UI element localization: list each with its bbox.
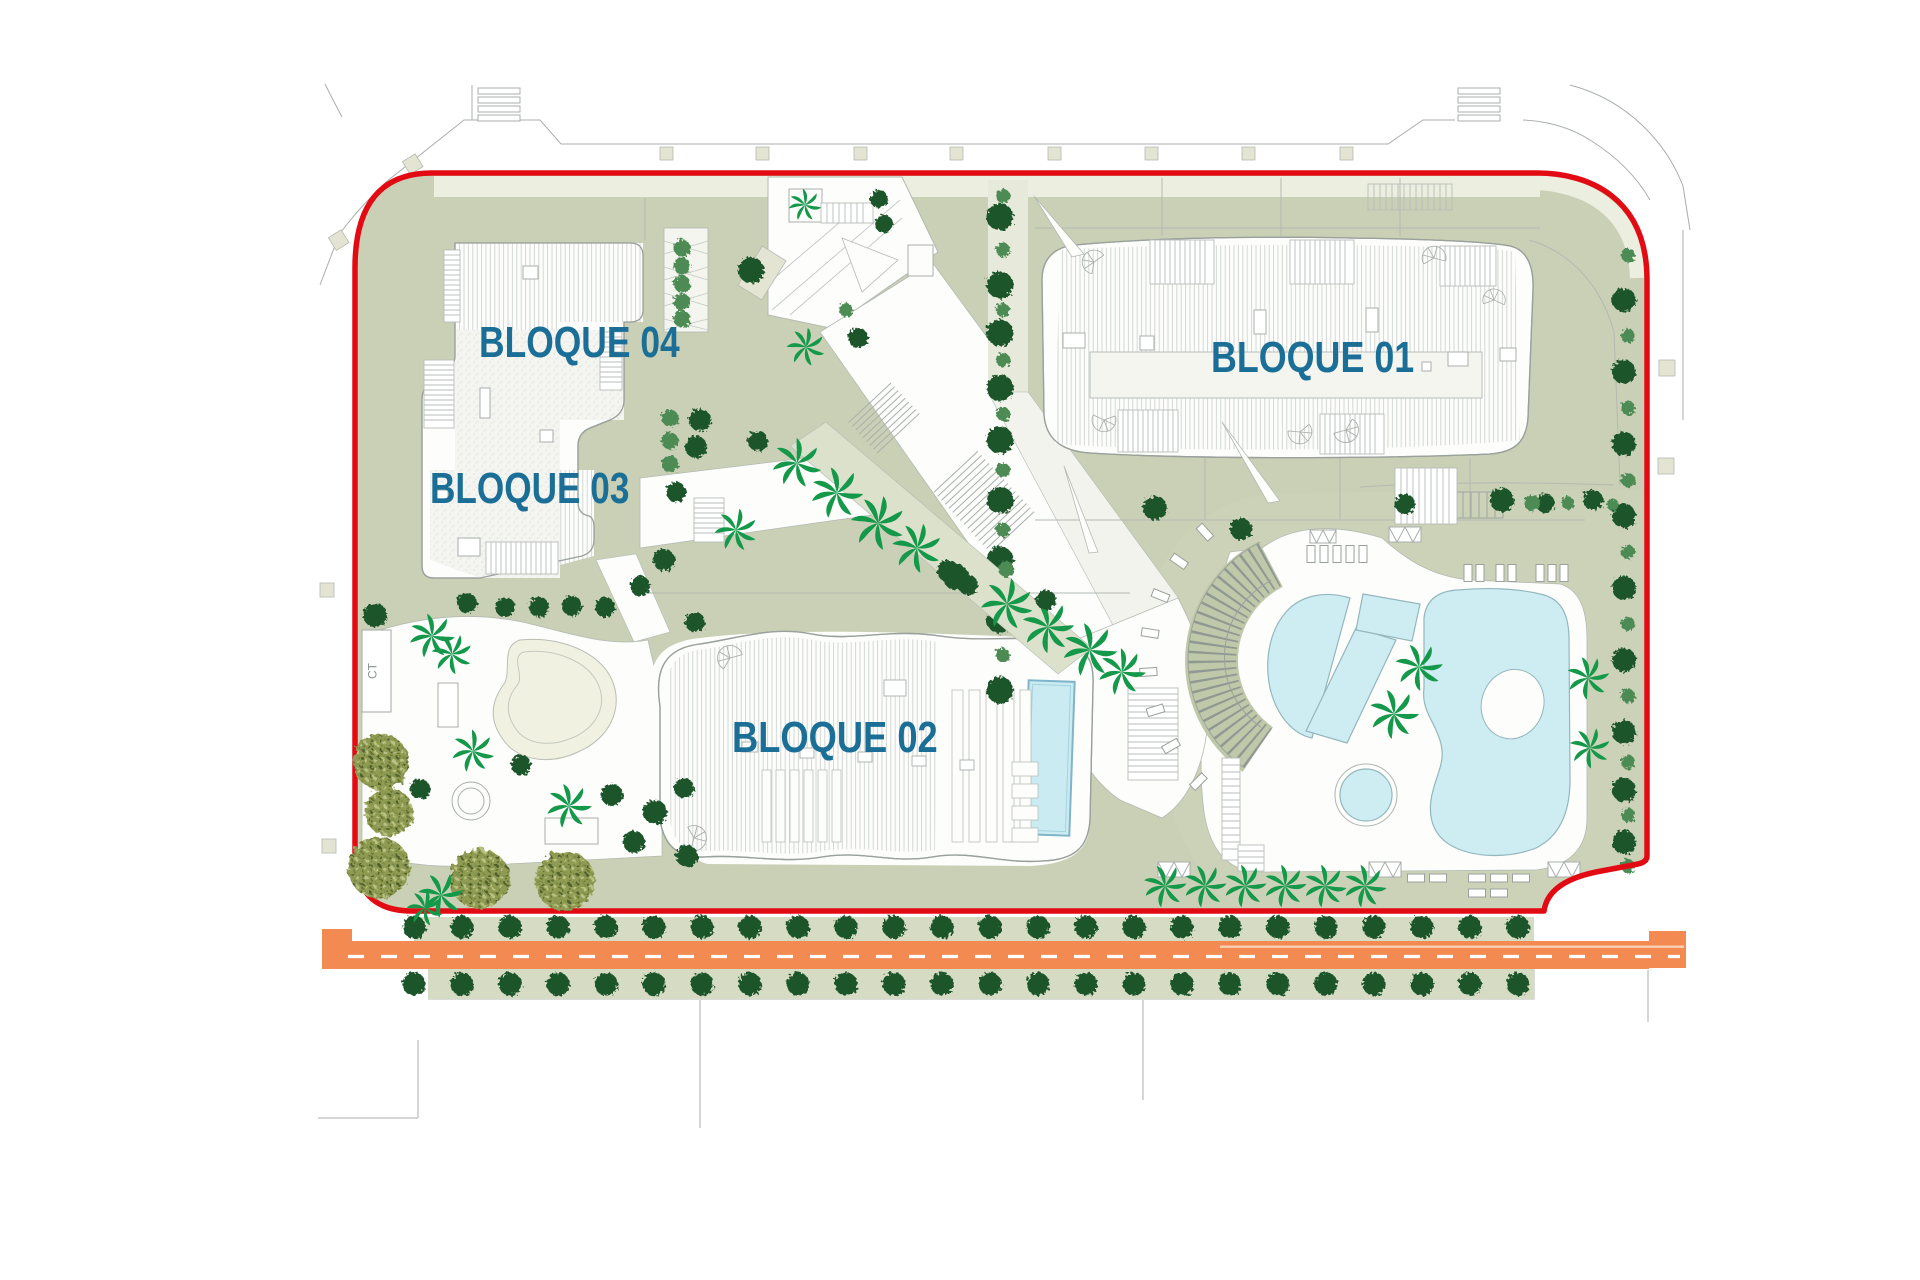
- svg-text:BLOQUE 03: BLOQUE 03: [430, 464, 629, 513]
- svg-text:BLOQUE 02: BLOQUE 02: [732, 712, 938, 762]
- svg-text:BLOQUE 04: BLOQUE 04: [479, 318, 680, 366]
- svg-text:CT: CT: [366, 662, 380, 679]
- svg-text:BLOQUE 01: BLOQUE 01: [1211, 333, 1414, 382]
